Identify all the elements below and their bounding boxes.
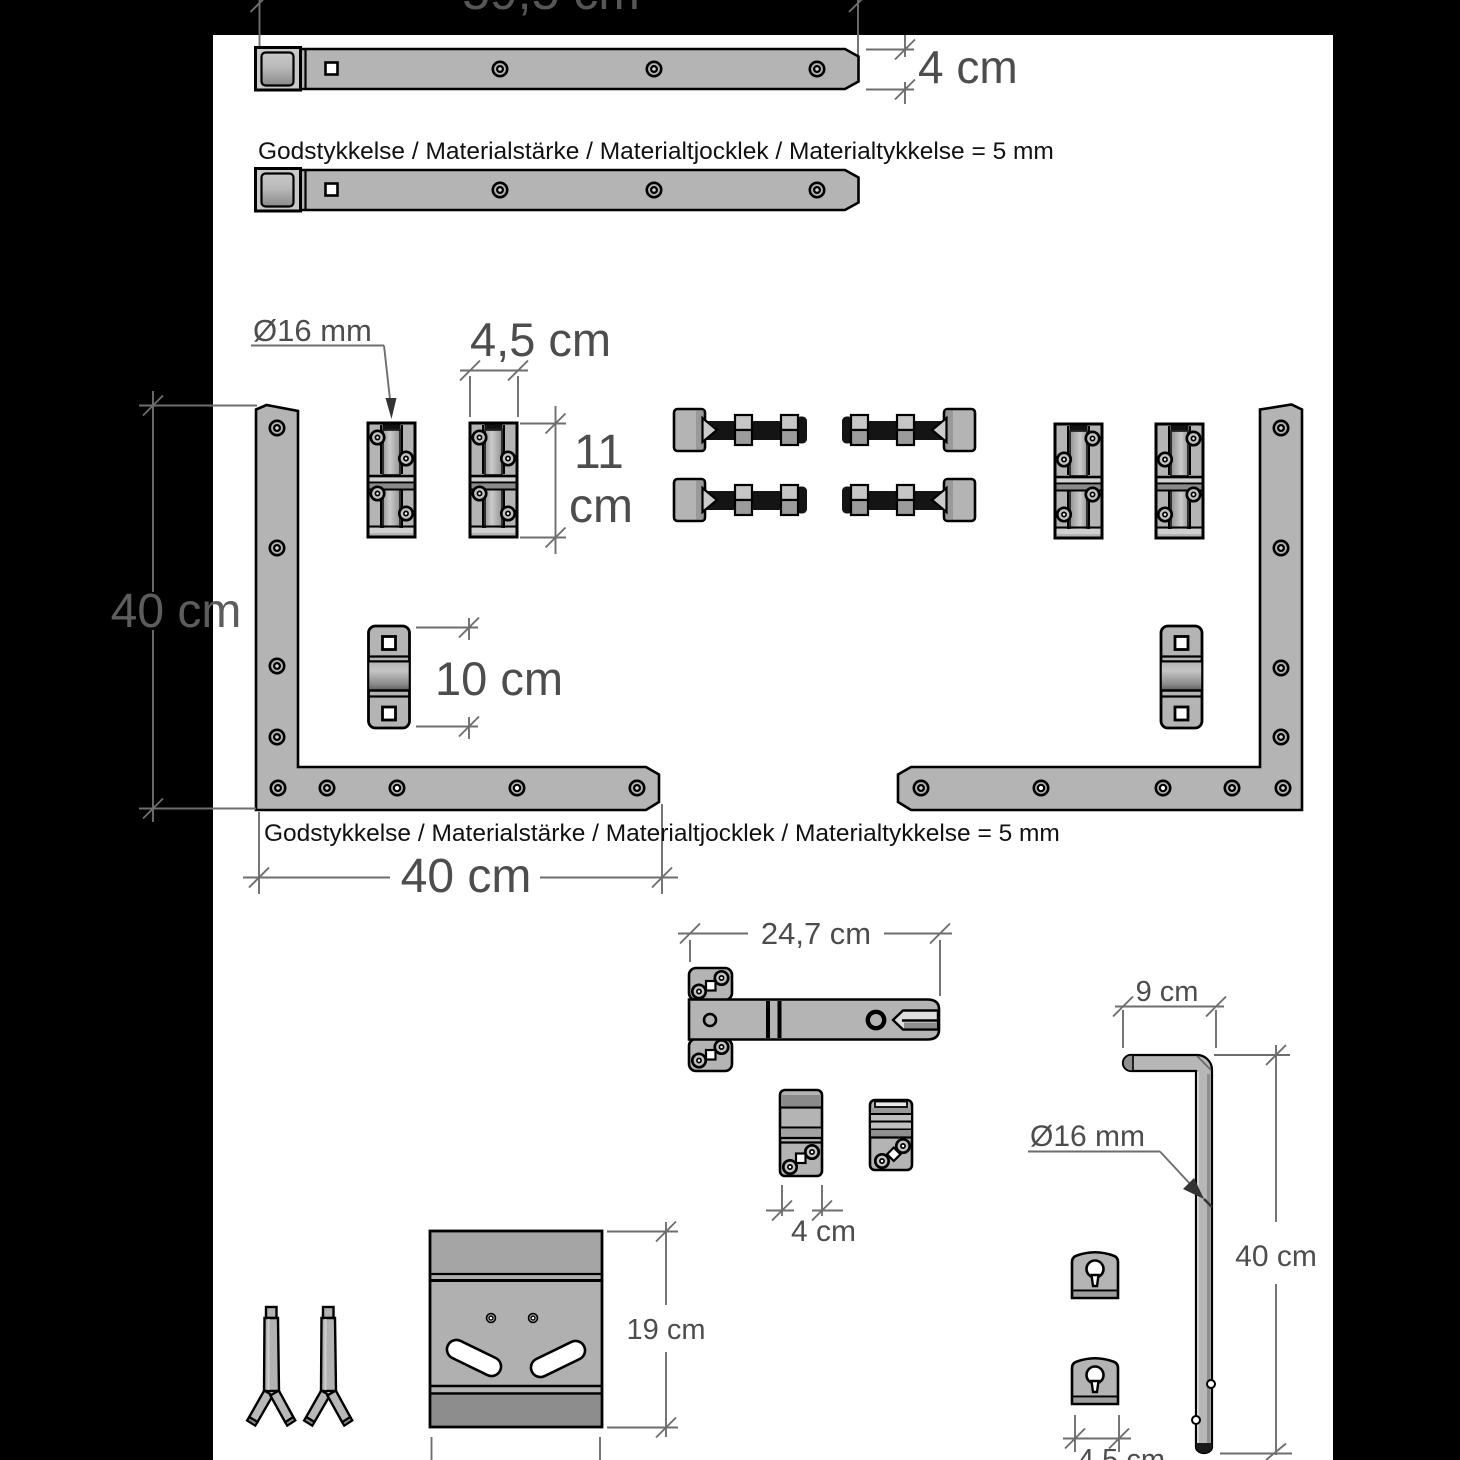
svg-text:Godstykkelse / Materialstärke: Godstykkelse / Materialstärke / Material… <box>258 138 1054 165</box>
svg-text:40 cm: 40 cm <box>1235 1240 1317 1273</box>
svg-text:24,7 cm: 24,7 cm <box>761 916 871 951</box>
svg-text:4 cm: 4 cm <box>791 1215 856 1248</box>
svg-text:4,5 cm: 4,5 cm <box>1078 1444 1165 1460</box>
svg-text:cm: cm <box>569 480 633 533</box>
svg-text:Godstykkelse / Materialstärke: Godstykkelse / Materialstärke / Material… <box>264 820 1060 847</box>
svg-text:40 cm: 40 cm <box>111 585 242 638</box>
svg-text:10 cm: 10 cm <box>435 652 563 705</box>
svg-text:4,5 cm: 4,5 cm <box>470 313 611 366</box>
svg-text:19 cm: 19 cm <box>627 1314 706 1346</box>
svg-text:4 cm: 4 cm <box>918 41 1018 93</box>
svg-text:Ø16 mm: Ø16 mm <box>1030 1120 1145 1153</box>
svg-text:9 cm: 9 cm <box>1136 976 1199 1008</box>
svg-text:40 cm: 40 cm <box>401 850 532 903</box>
svg-text:59,5 cm: 59,5 cm <box>462 0 640 20</box>
svg-text:11: 11 <box>574 426 624 479</box>
svg-text:Ø16 mm: Ø16 mm <box>253 313 372 348</box>
